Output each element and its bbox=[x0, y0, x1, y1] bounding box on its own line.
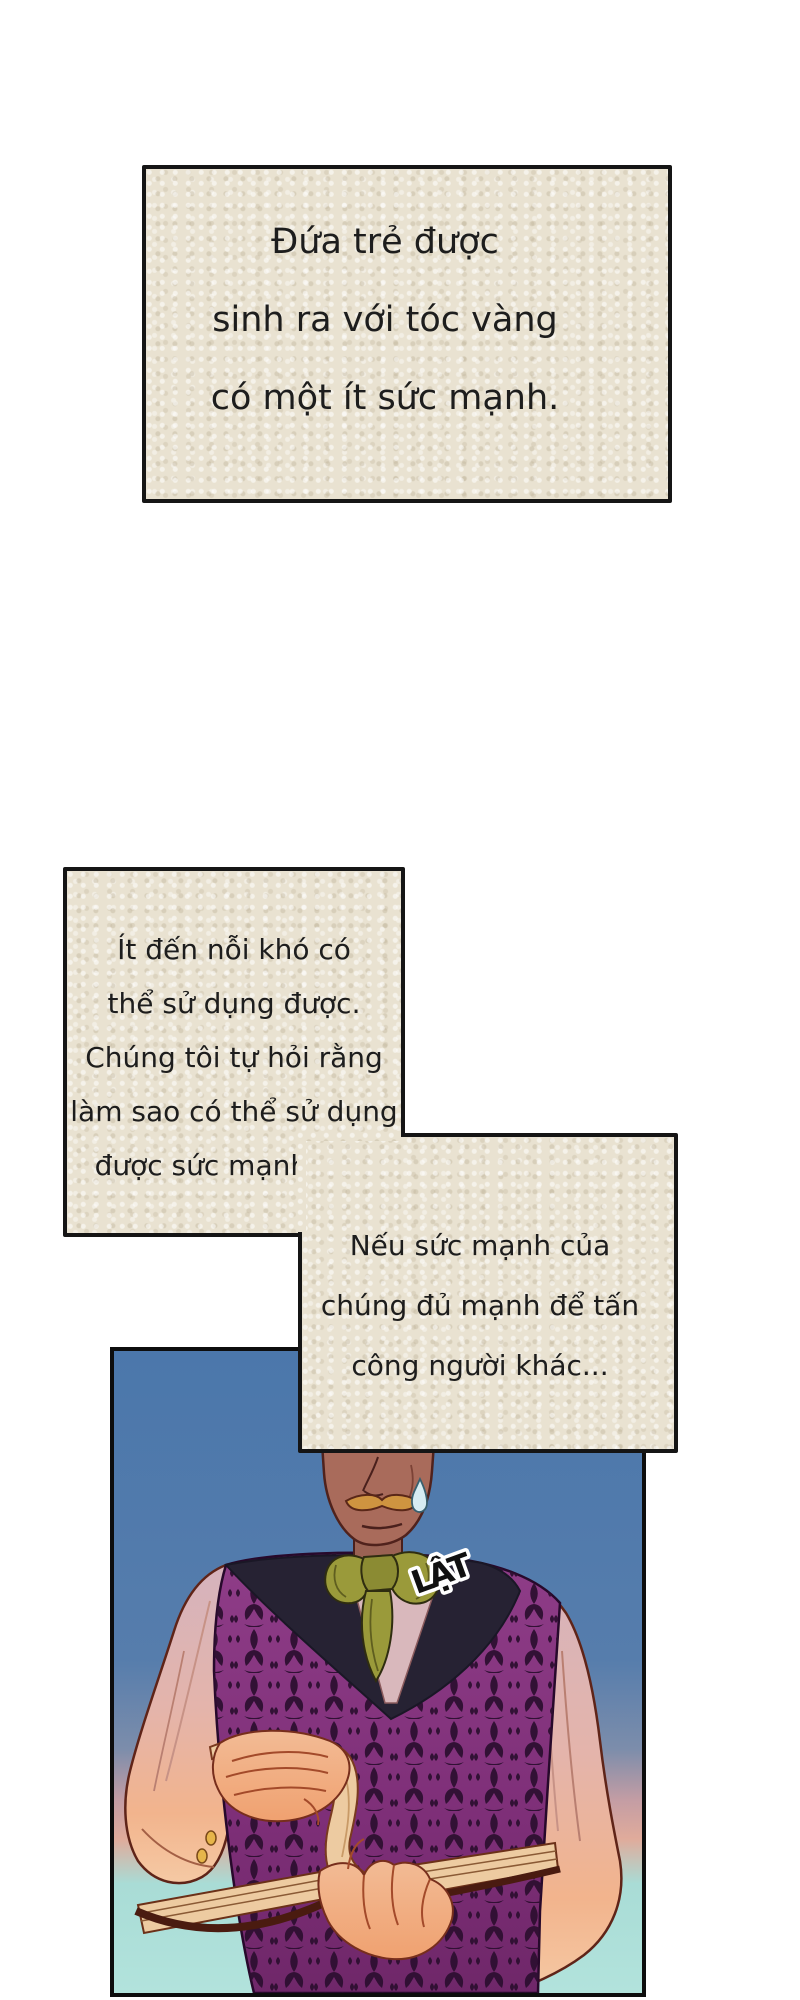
narration-line: sinh ra với tóc vàng bbox=[146, 281, 624, 359]
narration-box-1: Đứa trẻ được sinh ra với tóc vàng có một… bbox=[142, 165, 672, 503]
box-merge-patch-left bbox=[297, 1132, 306, 1232]
narration-line: Nếu sức mạnh của bbox=[302, 1216, 658, 1276]
narration-box-3: Nếu sức mạnh của chúng đủ mạnh để tấn cô… bbox=[298, 1133, 678, 1453]
narration-line: làm sao có thể sử dụng bbox=[67, 1085, 401, 1139]
narration-line: có một ít sức mạnh. bbox=[146, 359, 624, 437]
narration-line: Chúng tôi tự hỏi rằng bbox=[67, 1031, 401, 1085]
narration-line: thể sử dụng được. bbox=[67, 977, 401, 1031]
box-merge-patch-top bbox=[297, 1132, 401, 1141]
narration-line: Ít đến nỗi khó có bbox=[67, 923, 401, 977]
narration-line: Đứa trẻ được bbox=[146, 203, 624, 281]
manga-page: LẬT Đứa trẻ được sinh ra với tóc vàng có… bbox=[0, 0, 800, 2000]
narration-line: công người khác... bbox=[302, 1336, 658, 1396]
narration-line: chúng đủ mạnh để tấn bbox=[302, 1276, 658, 1336]
